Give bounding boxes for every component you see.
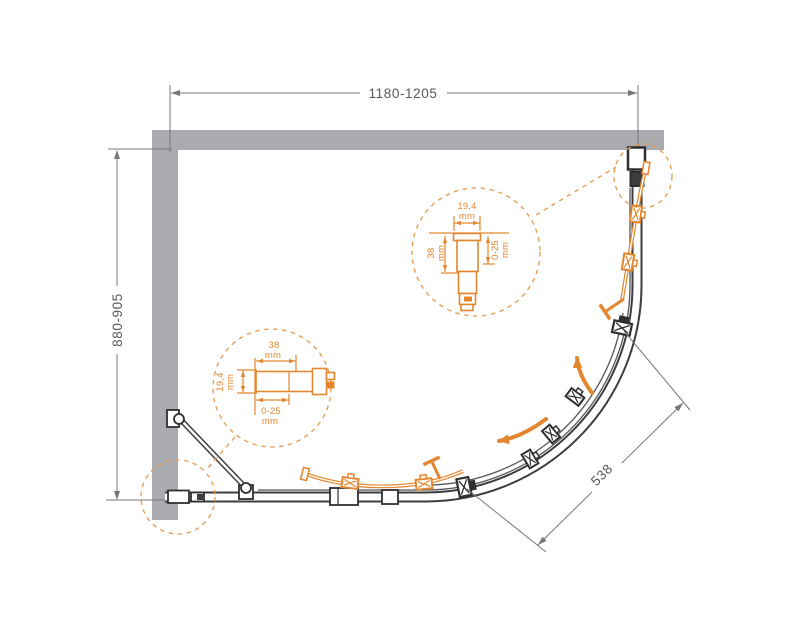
top-wall — [152, 130, 664, 150]
detail-bottom-length-unit: mm — [265, 350, 281, 361]
wall-profile-bottom-left — [168, 491, 204, 504]
detail-top-length-unit: mm — [436, 245, 447, 261]
shower-enclosure-plan: 1180-1205 880-905 — [0, 0, 800, 640]
width-dimension-label: 1180-1205 — [369, 86, 438, 101]
left-wall — [152, 130, 178, 520]
detail-top-adjust-unit: mm — [500, 242, 511, 258]
hinge-icon — [241, 483, 251, 493]
hinge-icon — [174, 414, 184, 424]
detail-bottom-adjust-unit: mm — [262, 416, 278, 427]
detail-bottom-width-unit: mm — [225, 374, 236, 390]
depth-dimension-label: 880-905 — [110, 293, 125, 347]
detail-top-width-unit: mm — [459, 211, 475, 222]
